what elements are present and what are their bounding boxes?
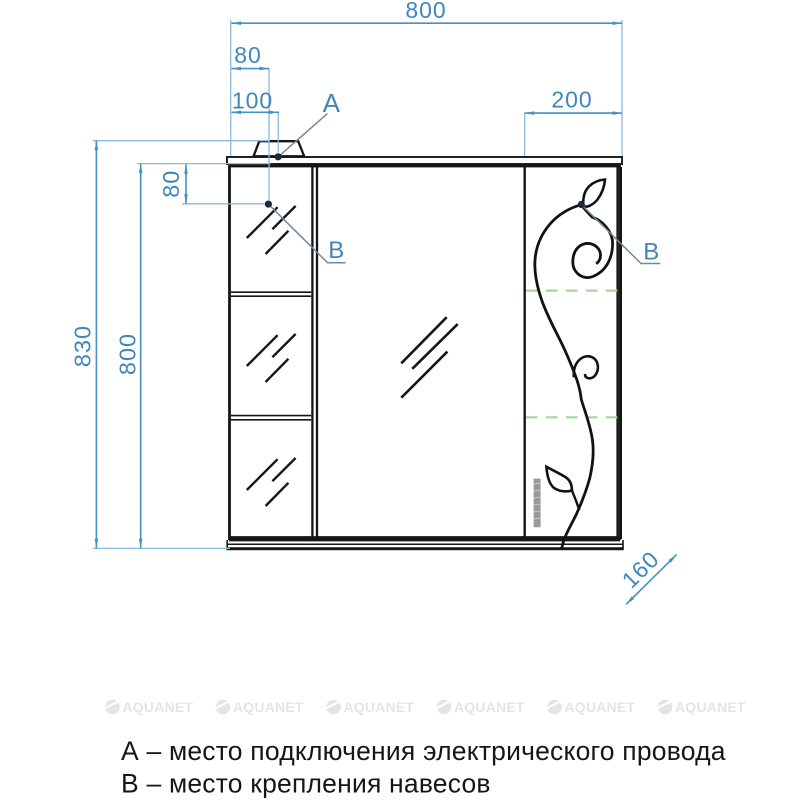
svg-text:AQUANET: AQUANET [123, 699, 194, 715]
svg-text:80: 80 [234, 42, 262, 68]
svg-text:В – место крепления навесов: В – место крепления навесов [121, 769, 491, 799]
svg-text:80: 80 [158, 170, 184, 198]
svg-text:A: A [323, 88, 341, 118]
svg-text:800: 800 [115, 333, 141, 375]
svg-text:А – место подключения электрич: А – место подключения электрического про… [121, 736, 726, 766]
svg-text:800: 800 [405, 0, 446, 23]
svg-text:200: 200 [551, 87, 592, 113]
svg-text:100: 100 [232, 87, 273, 113]
svg-text:B: B [328, 237, 344, 264]
svg-text:B: B [643, 239, 659, 266]
svg-text:830: 830 [70, 325, 96, 367]
